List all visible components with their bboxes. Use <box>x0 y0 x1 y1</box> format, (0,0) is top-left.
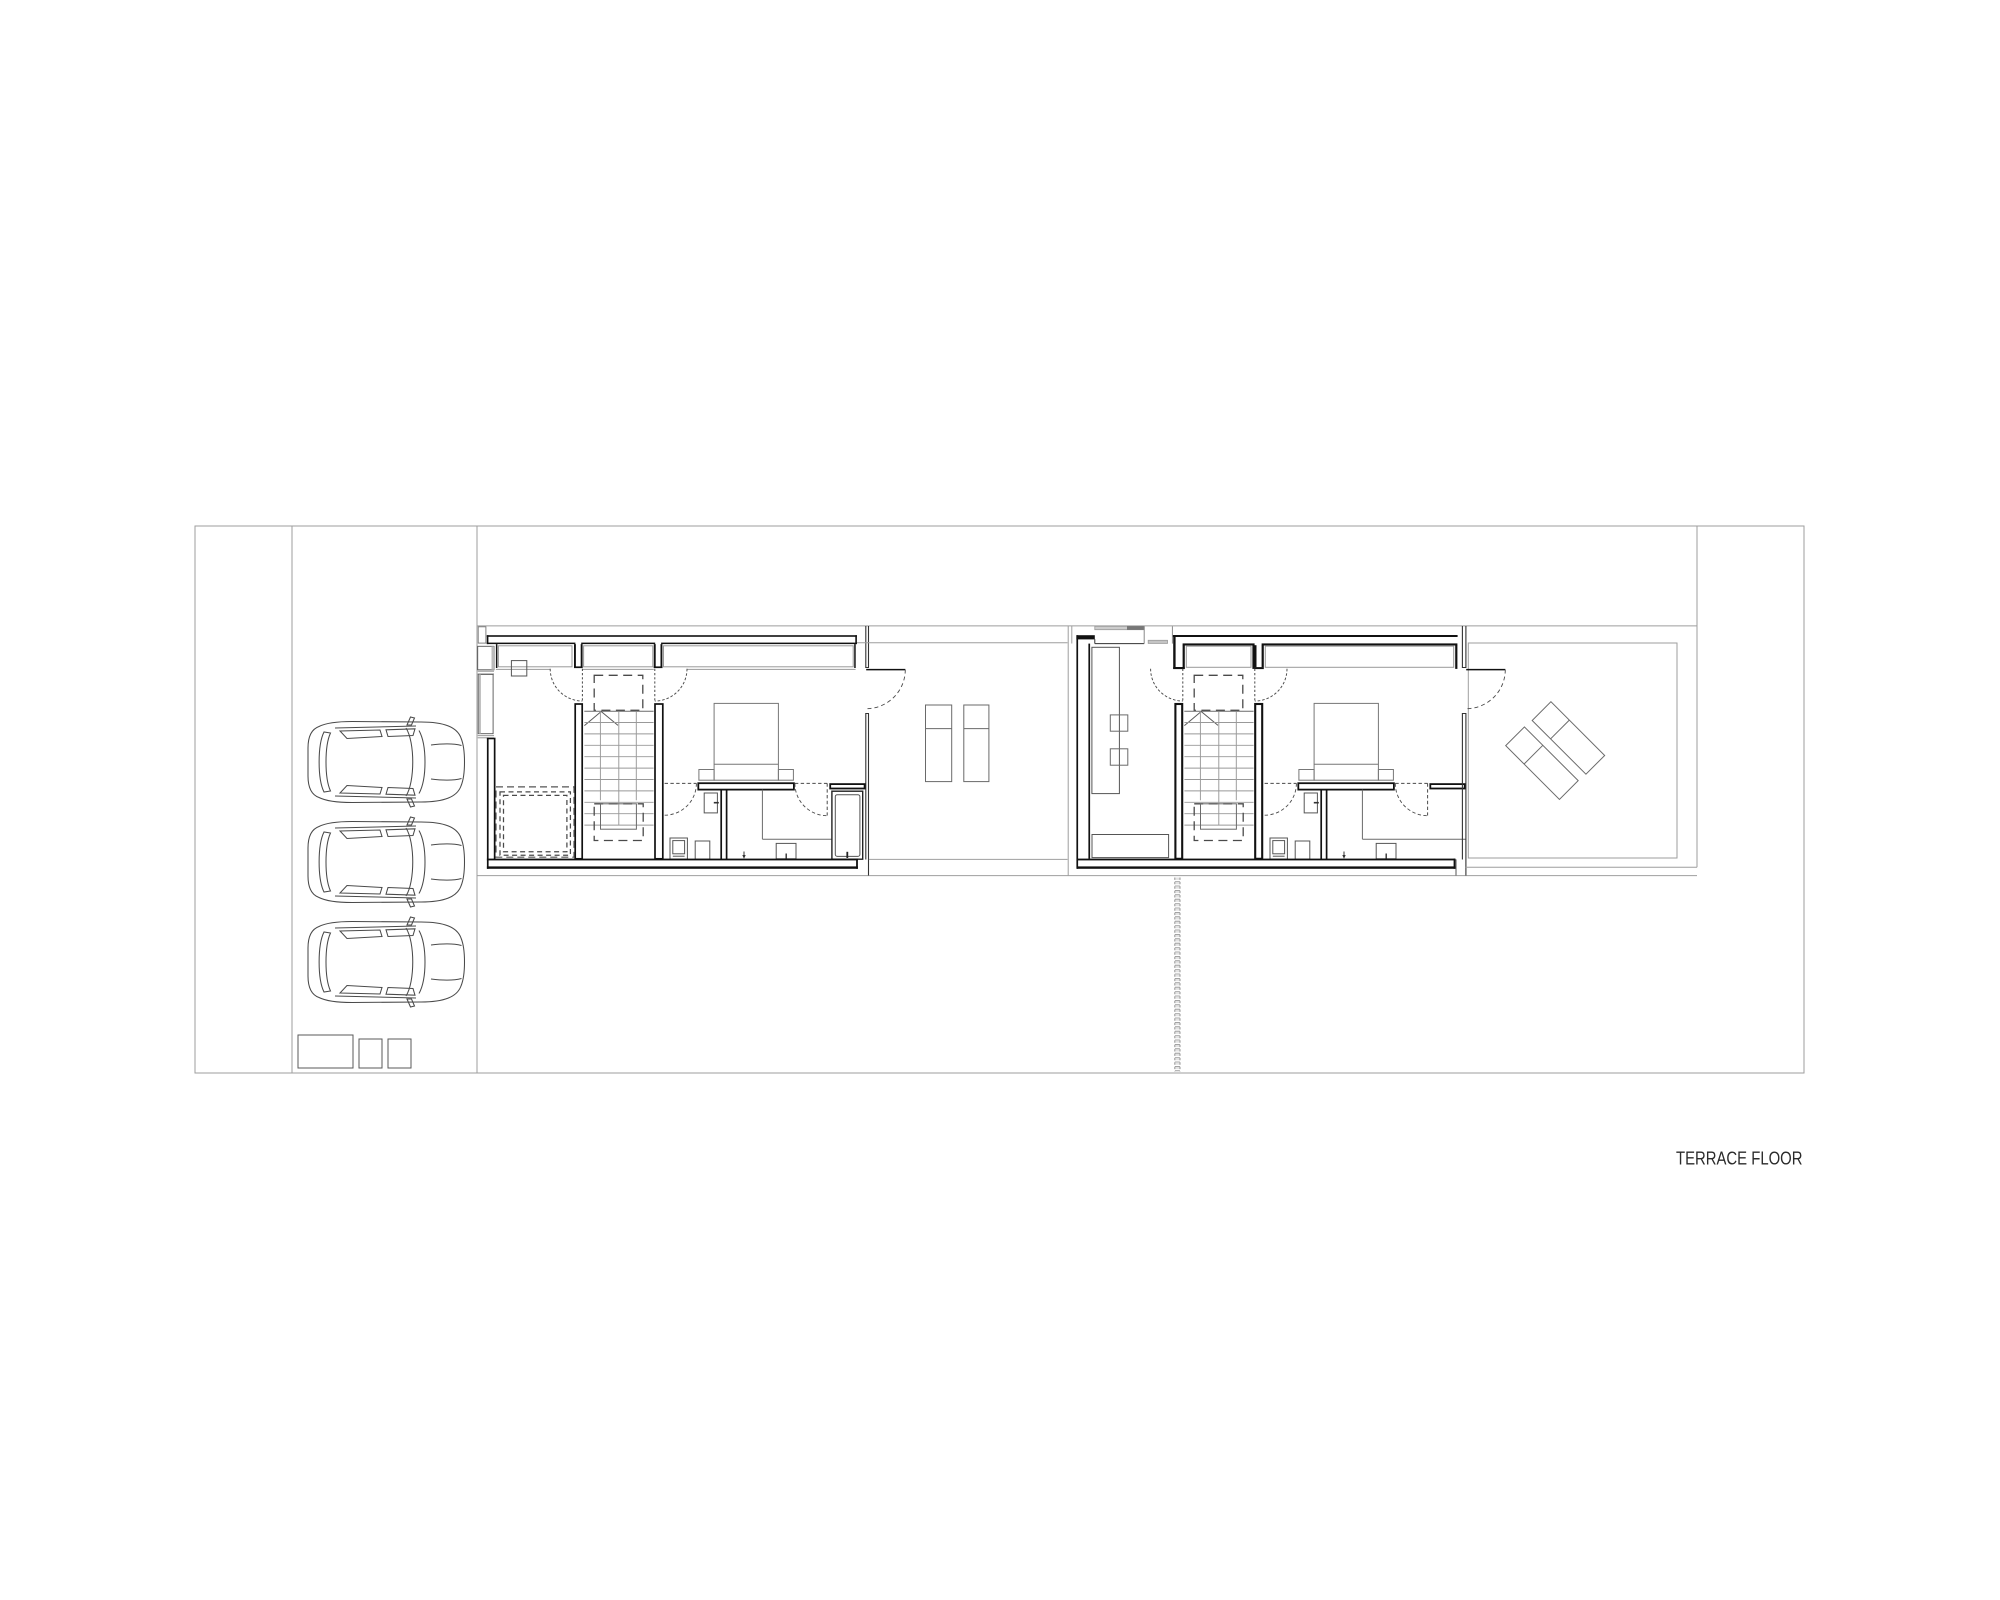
svg-text:TERRACE FLOOR: TERRACE FLOOR <box>1676 1148 1803 1169</box>
